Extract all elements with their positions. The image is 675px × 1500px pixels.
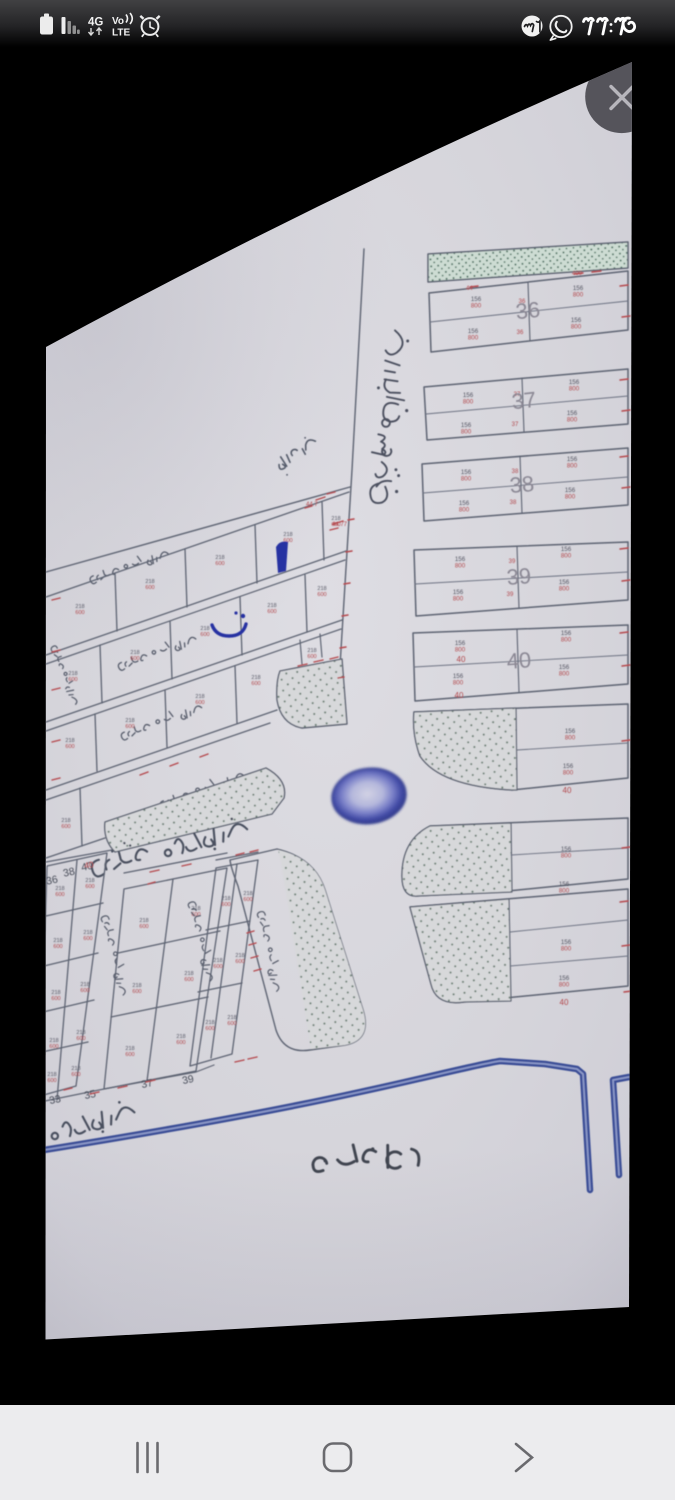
- svg-text:40: 40: [457, 655, 466, 664]
- svg-text:40: 40: [560, 998, 569, 1007]
- svg-text:36: 36: [517, 330, 524, 336]
- svg-text:38: 38: [509, 471, 536, 498]
- svg-text:37: 37: [510, 387, 537, 414]
- svg-text:44: 44: [466, 286, 473, 292]
- svg-text:36: 36: [514, 297, 541, 324]
- svg-text:44.77: 44.77: [332, 522, 348, 528]
- svg-text:39: 39: [506, 563, 533, 590]
- svg-text:37: 37: [512, 422, 519, 428]
- svg-text:44.7: 44.7: [306, 502, 318, 508]
- svg-text:40: 40: [506, 647, 532, 674]
- svg-text:40: 40: [563, 786, 572, 795]
- svg-text:39: 39: [507, 592, 514, 598]
- svg-text:Vo: Vo: [112, 16, 124, 27]
- svg-text:40: 40: [83, 859, 94, 871]
- svg-text:400: 400: [572, 271, 583, 277]
- svg-text:38: 38: [510, 500, 517, 506]
- svg-text:LTE: LTE: [112, 28, 130, 39]
- svg-text:4G: 4G: [88, 17, 103, 29]
- svg-text:40: 40: [455, 691, 464, 700]
